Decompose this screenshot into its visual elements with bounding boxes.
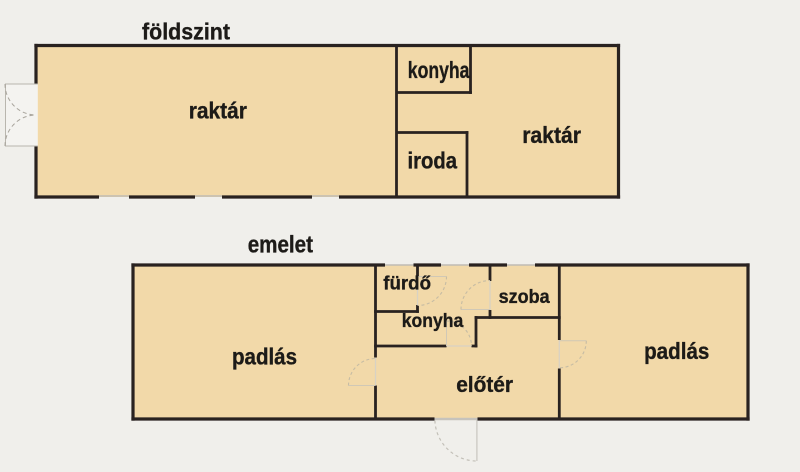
svg-text:fürdő: fürdő: [383, 272, 431, 294]
svg-text:padlás: padlás: [232, 344, 297, 370]
svg-text:konyha: konyha: [408, 57, 470, 83]
svg-text:előtér: előtér: [456, 372, 513, 397]
svg-text:emelet: emelet: [248, 232, 313, 259]
svg-text:raktár: raktár: [522, 122, 581, 148]
svg-text:raktár: raktár: [189, 98, 247, 124]
svg-text:padlás: padlás: [644, 338, 709, 364]
svg-text:iroda: iroda: [408, 148, 458, 174]
svg-text:szoba: szoba: [499, 286, 550, 308]
svg-text:földszint: földszint: [142, 18, 230, 44]
svg-text:konyha: konyha: [402, 310, 464, 332]
